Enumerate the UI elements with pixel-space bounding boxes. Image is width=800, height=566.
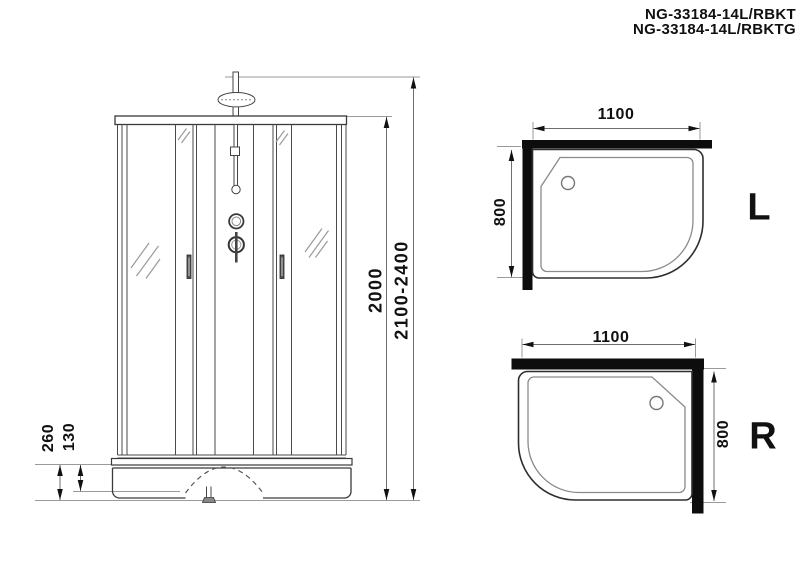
dim-label-130: 130 [61, 423, 79, 451]
dim-label-800-left: 800 [492, 198, 510, 226]
orientation-label-left: L [747, 187, 770, 230]
model-number-line2: NG-33184-14L/RBKTG [633, 22, 796, 37]
drain-left [562, 177, 575, 190]
bottom-track-lines [118, 455, 347, 458]
front-extension-lines [35, 77, 420, 501]
dim-label-1100-right: 1100 [593, 329, 630, 347]
hand-shower-slider [231, 147, 240, 156]
tray-outline-left [533, 150, 704, 279]
top-frame-bar [115, 116, 347, 125]
tray-rim-band [112, 459, 353, 466]
dim-label-260: 260 [40, 424, 58, 452]
dim-label-800-right: 800 [715, 420, 733, 448]
top-view-left [497, 122, 712, 290]
model-title-block: NG-33184-14L/RBKT NG-33184-14L/RBKTG [633, 7, 796, 37]
wall-bar-left [523, 149, 533, 291]
hatch-top-right [276, 131, 288, 146]
wall-bar-top [522, 140, 712, 149]
adjustable-foot-stem [207, 487, 212, 498]
dim-label-1100-left: 1100 [598, 106, 635, 124]
hatch-left-glass [131, 243, 160, 279]
wall-bar-right [692, 359, 704, 514]
glass-hatches [131, 129, 329, 279]
hand-shower-holder [232, 185, 240, 193]
top-view-right [512, 339, 727, 514]
hatch-top-left [178, 129, 190, 144]
orientation-label-right: R [749, 416, 776, 459]
hatch-right-glass [305, 229, 329, 258]
dim-label-2000: 2000 [366, 267, 387, 313]
dim-label-2100-2400: 2100-2400 [392, 240, 413, 340]
wall-bar-top-r [512, 359, 705, 370]
adjustable-foot-base [203, 498, 216, 503]
model-number-line1: NG-33184-14L/RBKT [633, 7, 796, 22]
glass-panel-lines [118, 125, 347, 456]
front-view [35, 72, 420, 503]
shower-cabin-technical-drawing: NG-33184-14L/RBKT NG-33184-14L/RBKTG 200… [0, 0, 800, 566]
tray-outline-right [519, 372, 693, 501]
diverter-ring [229, 214, 243, 228]
tray-skirt-cutout-arc [186, 467, 264, 493]
tray-skirt [113, 468, 352, 498]
drain-right [650, 397, 663, 410]
